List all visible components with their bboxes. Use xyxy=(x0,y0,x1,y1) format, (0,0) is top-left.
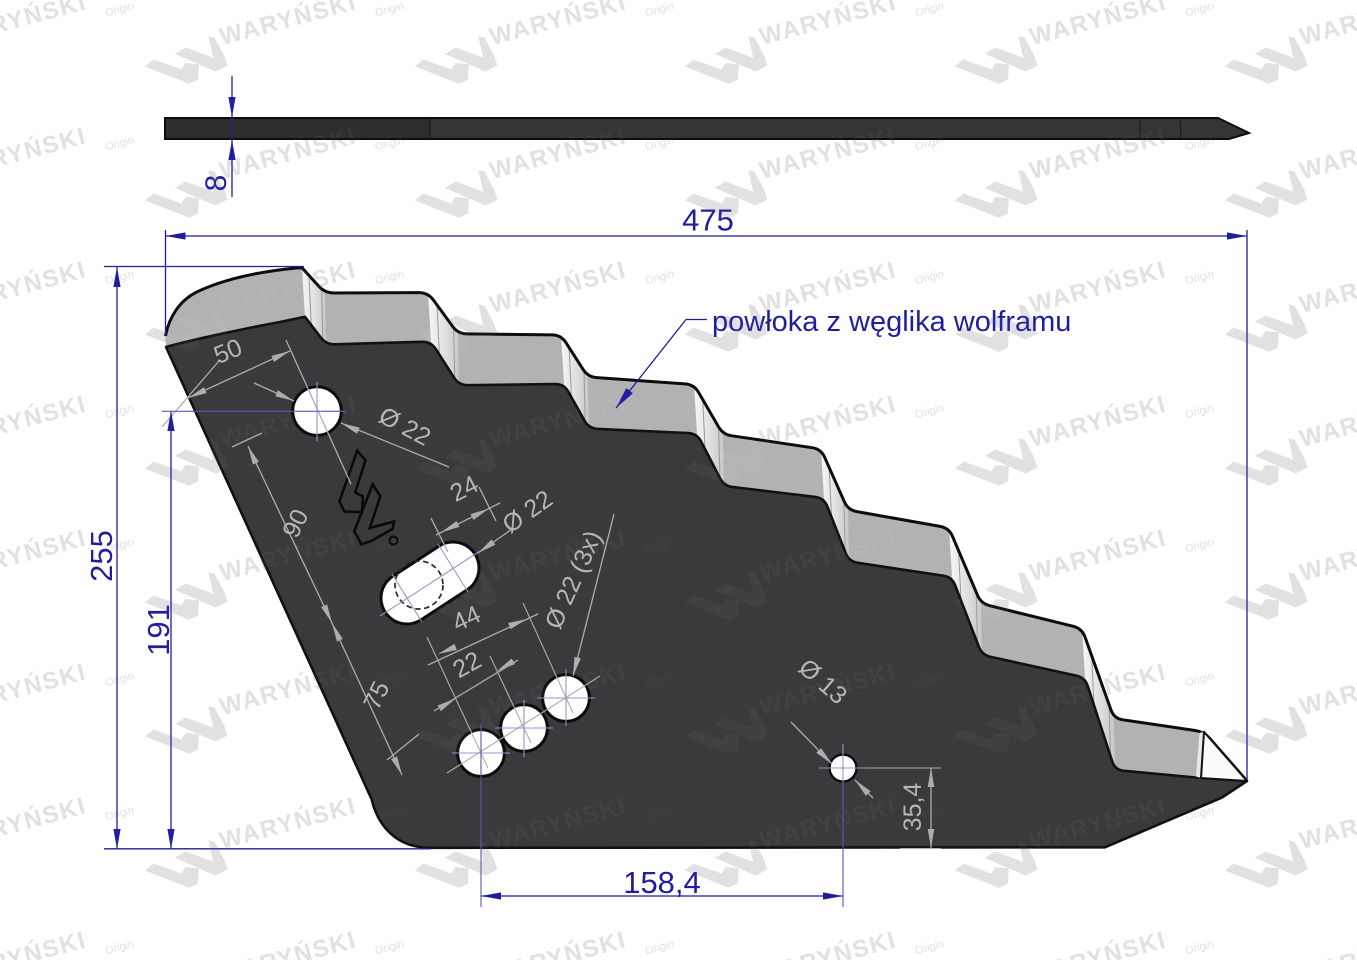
svg-text:255: 255 xyxy=(84,530,119,582)
svg-text:35,4: 35,4 xyxy=(899,783,927,832)
